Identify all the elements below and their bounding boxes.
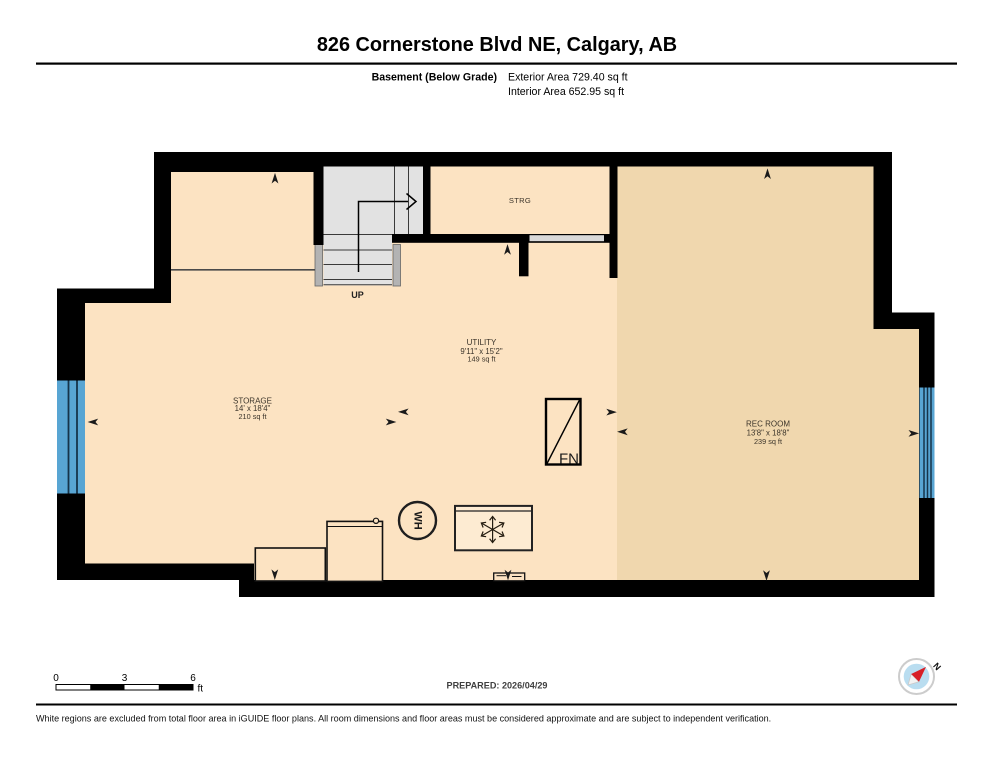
svg-text:FN: FN (559, 451, 579, 468)
svg-text:ft: ft (198, 684, 204, 695)
svg-text:UP: UP (351, 290, 364, 300)
svg-text:6: 6 (190, 673, 196, 684)
svg-text:149 sq ft: 149 sq ft (468, 355, 496, 364)
svg-text:PREPARED: 2026/04/29: PREPARED: 2026/04/29 (447, 681, 548, 691)
svg-text:UTILITY: UTILITY (467, 338, 497, 347)
svg-text:0: 0 (53, 673, 59, 684)
svg-text:210 sq ft: 210 sq ft (239, 412, 267, 421)
svg-text:Exterior Area 729.40 sq ft: Exterior Area 729.40 sq ft (508, 72, 628, 84)
svg-text:3: 3 (122, 673, 128, 684)
svg-text:REC ROOM: REC ROOM (746, 420, 790, 429)
svg-text:STRG: STRG (509, 196, 531, 205)
svg-text:White regions are excluded fro: White regions are excluded from total fl… (36, 714, 771, 724)
svg-text:WH: WH (412, 511, 424, 529)
svg-text:Interior Area 652.95 sq ft: Interior Area 652.95 sq ft (508, 86, 624, 98)
svg-text:239 sq ft: 239 sq ft (754, 437, 782, 446)
svg-text:Basement (Below Grade): Basement (Below Grade) (372, 72, 497, 84)
svg-text:826 Cornerstone Blvd NE, Calga: 826 Cornerstone Blvd NE, Calgary, AB (317, 34, 677, 56)
